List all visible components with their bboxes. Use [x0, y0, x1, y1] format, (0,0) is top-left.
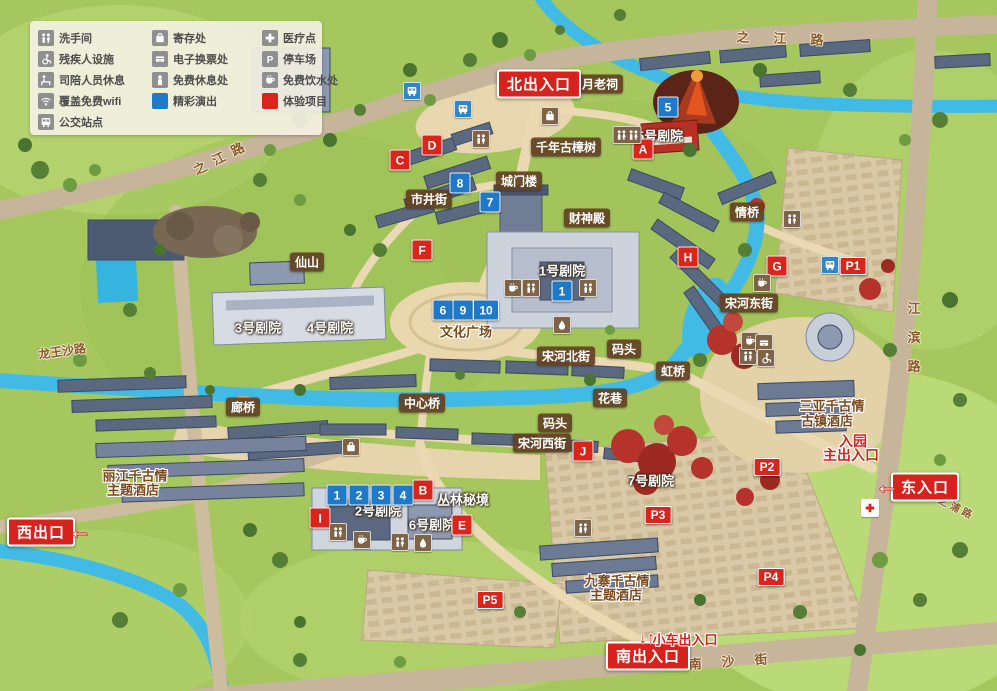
place-label-theater3: 3号剧院	[235, 318, 281, 337]
legend-label: 免费饮水处	[283, 72, 338, 88]
place-label-dock-west: 码头	[538, 414, 572, 433]
car-gate-label: 小车出入口	[652, 630, 717, 649]
legend-label: 寄存处	[173, 30, 206, 46]
legend-item: 残疾人设施	[38, 48, 125, 69]
hotel-label-sanya-line2: 古镇酒店	[801, 411, 853, 430]
parking-marker-P2: P2	[754, 458, 781, 476]
legend-label: 医疗点	[283, 30, 316, 46]
rest-icon	[152, 72, 168, 88]
legend-column-1: 洗手间 残疾人设施 司陪人员休息 覆盖免费wifi 公交站点	[38, 27, 125, 132]
legend-label: 覆盖免费wifi	[59, 93, 121, 109]
legend-item: 免费饮水处	[262, 69, 338, 90]
legend-label: 司陪人员休息	[59, 72, 125, 88]
experience-marker-J: J	[573, 441, 594, 462]
legend-column-3: 医疗点 停车场 免费饮水处 体验项目	[262, 27, 338, 111]
legend-item: 寄存处	[152, 27, 228, 48]
place-label-hong-bridge: 虹桥	[656, 362, 690, 381]
north-gate-label: 北出入口	[497, 70, 581, 99]
show-marker-4: 4	[393, 485, 414, 506]
west-exit-arrow: ←	[68, 519, 92, 543]
show-marker-9: 9	[453, 300, 474, 321]
west-exit-label: 西出口	[7, 518, 75, 547]
restroom-icon	[391, 533, 409, 551]
show-marker-10: 10	[473, 300, 499, 321]
place-label-camphor: 千年古樟树	[531, 138, 601, 157]
show-square	[152, 93, 168, 109]
legend-item: 公交站点	[38, 111, 125, 132]
place-label-lang-bridge: 廊桥	[226, 398, 260, 417]
parking-icon	[262, 51, 278, 67]
road-label-zhijiang-top: 之江路	[736, 27, 848, 50]
legend-label: 精彩演出	[173, 93, 217, 109]
legend-item: 覆盖免费wifi	[38, 90, 125, 111]
legend-label: 停车场	[283, 51, 316, 67]
wheelchair-icon	[757, 349, 775, 367]
place-label-theater4: 4号剧院	[307, 318, 353, 337]
restroom-icon	[579, 279, 597, 297]
legend-item: 洗手间	[38, 27, 125, 48]
legend-item: 电子换票处	[152, 48, 228, 69]
water-icon	[753, 274, 771, 292]
legend-label: 残疾人设施	[59, 51, 114, 67]
show-marker-1: 1	[327, 485, 348, 506]
place-label-caishen: 财神殿	[564, 209, 610, 228]
legend-label: 洗手间	[59, 30, 92, 46]
main-gate-label-line2: 主出入口	[823, 445, 879, 465]
locker-icon	[152, 30, 168, 46]
water-icon	[353, 531, 371, 549]
bus-stop-icon	[454, 100, 472, 118]
place-label-qing-bridge: 情桥	[730, 203, 764, 222]
hotel-label-jiuzhai-line2: 主题酒店	[590, 585, 642, 604]
restroom-icon	[574, 519, 592, 537]
bus-stop-icon	[821, 256, 839, 274]
legend-item: 司陪人员休息	[38, 69, 125, 90]
place-label-gate-tower: 城门楼	[496, 172, 542, 191]
wheelchair-icon	[38, 51, 54, 67]
place-label-market-street: 市井街	[406, 190, 452, 209]
restroom-icon	[472, 130, 490, 148]
experience-marker-H: H	[678, 247, 699, 268]
place-label-song-east: 宋河东街	[720, 294, 778, 313]
restroom-icon	[329, 523, 347, 541]
legend-item: 免费休息处	[152, 69, 228, 90]
legend-column-2: 寄存处 电子换票处 免费休息处 精彩演出	[152, 27, 228, 111]
restroom-icon	[38, 30, 54, 46]
drinking-water-icon	[553, 316, 571, 334]
show-marker-2: 2	[349, 485, 370, 506]
parking-marker-P1: P1	[840, 257, 867, 275]
experience-marker-I: I	[310, 508, 331, 529]
parking-marker-P4: P4	[758, 568, 785, 586]
road-label-jiangbin: 江滨路	[904, 302, 923, 389]
experience-marker-B: B	[413, 480, 434, 501]
legend-label: 体验项目	[283, 93, 327, 109]
legend-item: 停车场	[262, 48, 338, 69]
wifi-icon	[38, 93, 54, 109]
legend-label: 电子换票处	[173, 51, 228, 67]
legend-item: 精彩演出	[152, 90, 228, 111]
restroom-icon	[783, 210, 801, 228]
experience-marker-C: C	[390, 150, 411, 171]
place-label-dock-north: 码头	[607, 340, 641, 359]
place-label-theater1: 1号剧院	[539, 261, 585, 280]
place-label-theater6: 6号剧院	[409, 515, 455, 534]
experience-marker-E: E	[452, 515, 473, 536]
experience-square	[262, 93, 278, 109]
show-marker-7: 7	[480, 192, 501, 213]
legend-item: 体验项目	[262, 90, 338, 111]
restroom-icon	[613, 126, 642, 144]
legend-label: 公交站点	[59, 114, 103, 130]
legend-label: 免费休息处	[173, 72, 228, 88]
place-label-center-bridge: 中心桥	[399, 394, 445, 413]
show-marker-8: 8	[450, 173, 471, 194]
place-label-culture-square: 文化广场	[440, 322, 492, 341]
legend-item: 医疗点	[262, 27, 338, 48]
scenic-area-map: 洗手间 残疾人设施 司陪人员休息 覆盖免费wifi 公交站点 寄存处 电子换票处…	[0, 0, 997, 691]
parking-marker-P3: P3	[645, 506, 672, 524]
water-icon	[504, 279, 522, 297]
locker-icon	[541, 107, 559, 125]
locker-icon	[342, 438, 360, 456]
medical-icon	[262, 30, 278, 46]
drinking-water-icon	[414, 534, 432, 552]
bus-icon	[38, 114, 54, 130]
east-entrance-arrow: ←	[875, 474, 899, 498]
restroom-icon	[522, 279, 540, 297]
place-label-theater7: 7号剧院	[628, 471, 674, 490]
hotel-label-lijiang-line2: 主题酒店	[107, 480, 159, 499]
place-label-song-north: 宋河北街	[537, 347, 595, 366]
medical-icon	[861, 499, 879, 517]
show-marker-3: 3	[371, 485, 392, 506]
eticket-icon	[152, 51, 168, 67]
east-entrance-label: 东入口	[891, 473, 959, 502]
bus-stop-icon	[403, 82, 421, 100]
show-marker-1-theater1: 1	[552, 281, 573, 302]
place-label-flower-lane: 花巷	[593, 389, 627, 408]
place-label-jungle: 丛林秘境	[437, 490, 489, 509]
staff-rest-icon	[38, 72, 54, 88]
place-label-yuelao: 月老祠	[577, 75, 623, 94]
parking-marker-P5: P5	[477, 591, 504, 609]
experience-marker-F: F	[412, 240, 433, 261]
legend-panel: 洗手间 残疾人设施 司陪人员休息 覆盖免费wifi 公交站点 寄存处 电子换票处…	[30, 21, 322, 135]
experience-marker-D: D	[422, 135, 443, 156]
show-marker-6: 6	[433, 300, 454, 321]
show-marker-5: 5	[658, 97, 679, 118]
place-label-xianshan: 仙山	[290, 253, 324, 272]
water-icon	[262, 72, 278, 88]
place-label-song-west: 宋河西街	[513, 434, 571, 453]
